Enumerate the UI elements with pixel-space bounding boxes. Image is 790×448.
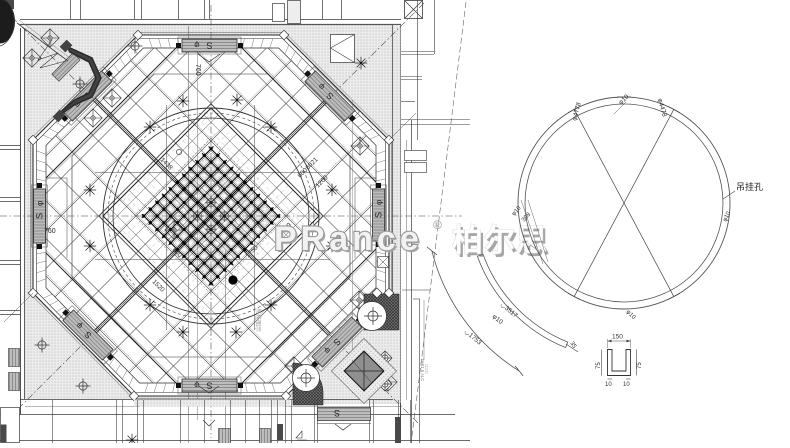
svg-text:柏尔思: 柏尔思	[452, 223, 548, 258]
svg-text:S: S	[374, 212, 384, 218]
svg-text:760: 760	[194, 64, 201, 76]
svg-text:吊挂图示: 吊挂图示	[254, 308, 262, 332]
svg-text:φ4478: φ4478	[656, 98, 668, 118]
svg-text:φ: φ	[194, 381, 199, 390]
svg-text:10: 10	[623, 382, 630, 388]
svg-text:□□□□: □□□□	[423, 364, 428, 375]
svg-text:S: S	[206, 381, 212, 391]
svg-text:φ10: φ10	[625, 309, 637, 321]
svg-text:10: 10	[605, 382, 612, 388]
svg-text:φ: φ	[36, 201, 45, 206]
svg-text:75: 75	[637, 362, 643, 369]
svg-text:φ10: φ10	[722, 210, 732, 223]
svg-text:760: 760	[44, 228, 56, 235]
svg-text:®: ®	[433, 218, 442, 232]
svg-text:φ: φ	[194, 41, 199, 50]
svg-text:75: 75	[596, 362, 602, 369]
svg-text:S: S	[334, 408, 340, 418]
svg-text:150: 150	[612, 334, 623, 341]
svg-text:φ4778: φ4778	[571, 101, 583, 121]
svg-text:35: 35	[568, 341, 577, 350]
svg-text:S: S	[206, 41, 212, 51]
svg-text:φ: φ	[375, 200, 384, 205]
svg-text:S: S	[35, 213, 45, 219]
svg-text:◡3517: ◡3517	[499, 301, 519, 320]
svg-text:PRance: PRance	[274, 220, 423, 258]
svg-text:吊挂孔: 吊挂孔	[736, 181, 763, 192]
svg-text:φ10: φ10	[491, 313, 505, 326]
svg-text:φ10: φ10	[511, 205, 523, 217]
